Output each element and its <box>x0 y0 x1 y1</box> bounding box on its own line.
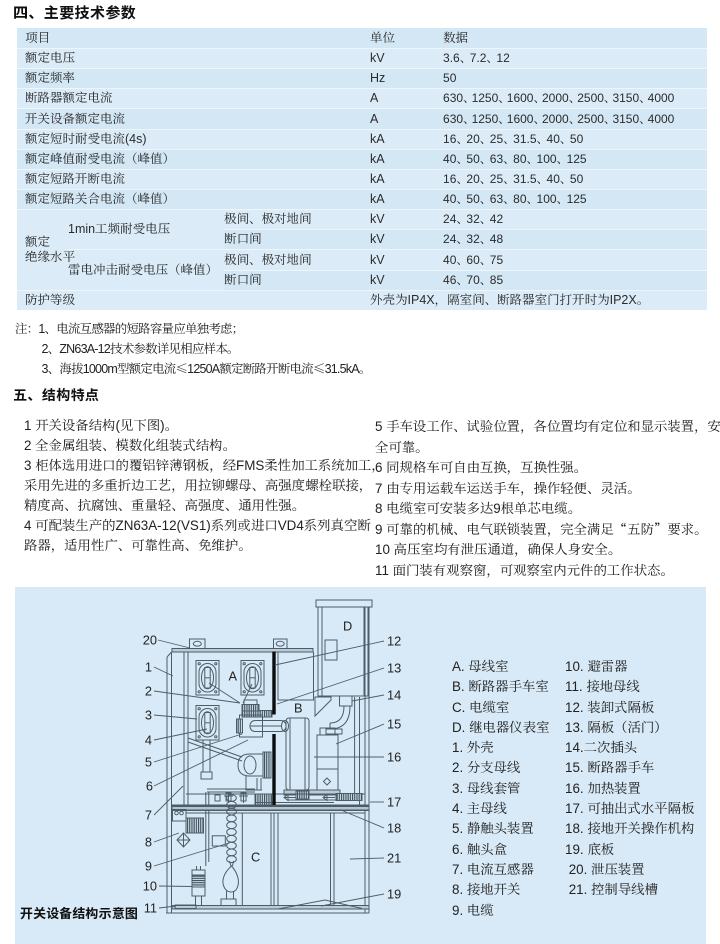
svg-text:20: 20 <box>143 633 157 648</box>
svg-text:11: 11 <box>144 901 157 916</box>
svg-text:1: 1 <box>145 660 152 675</box>
svg-text:4: 4 <box>145 733 152 748</box>
svg-text:9: 9 <box>145 859 152 874</box>
svg-text:19: 19 <box>387 887 401 902</box>
svg-text:6: 6 <box>146 779 153 794</box>
svg-text:12: 12 <box>387 634 401 649</box>
svg-text:10: 10 <box>143 879 157 894</box>
svg-text:18: 18 <box>387 821 401 836</box>
svg-text:5: 5 <box>145 755 152 770</box>
svg-text:D: D <box>343 619 352 634</box>
svg-text:B: B <box>294 701 303 716</box>
svg-text:2: 2 <box>145 684 152 699</box>
svg-text:7: 7 <box>145 808 152 823</box>
svg-text:13: 13 <box>387 661 401 676</box>
svg-text:17: 17 <box>387 795 401 810</box>
svg-text:16: 16 <box>387 750 401 765</box>
svg-text:C: C <box>251 850 260 865</box>
svg-text:15: 15 <box>387 717 401 732</box>
svg-text:A: A <box>229 669 238 684</box>
svg-text:8: 8 <box>145 835 152 850</box>
svg-text:3: 3 <box>145 708 152 723</box>
svg-text:14: 14 <box>387 688 401 703</box>
svg-text:21: 21 <box>387 851 401 866</box>
